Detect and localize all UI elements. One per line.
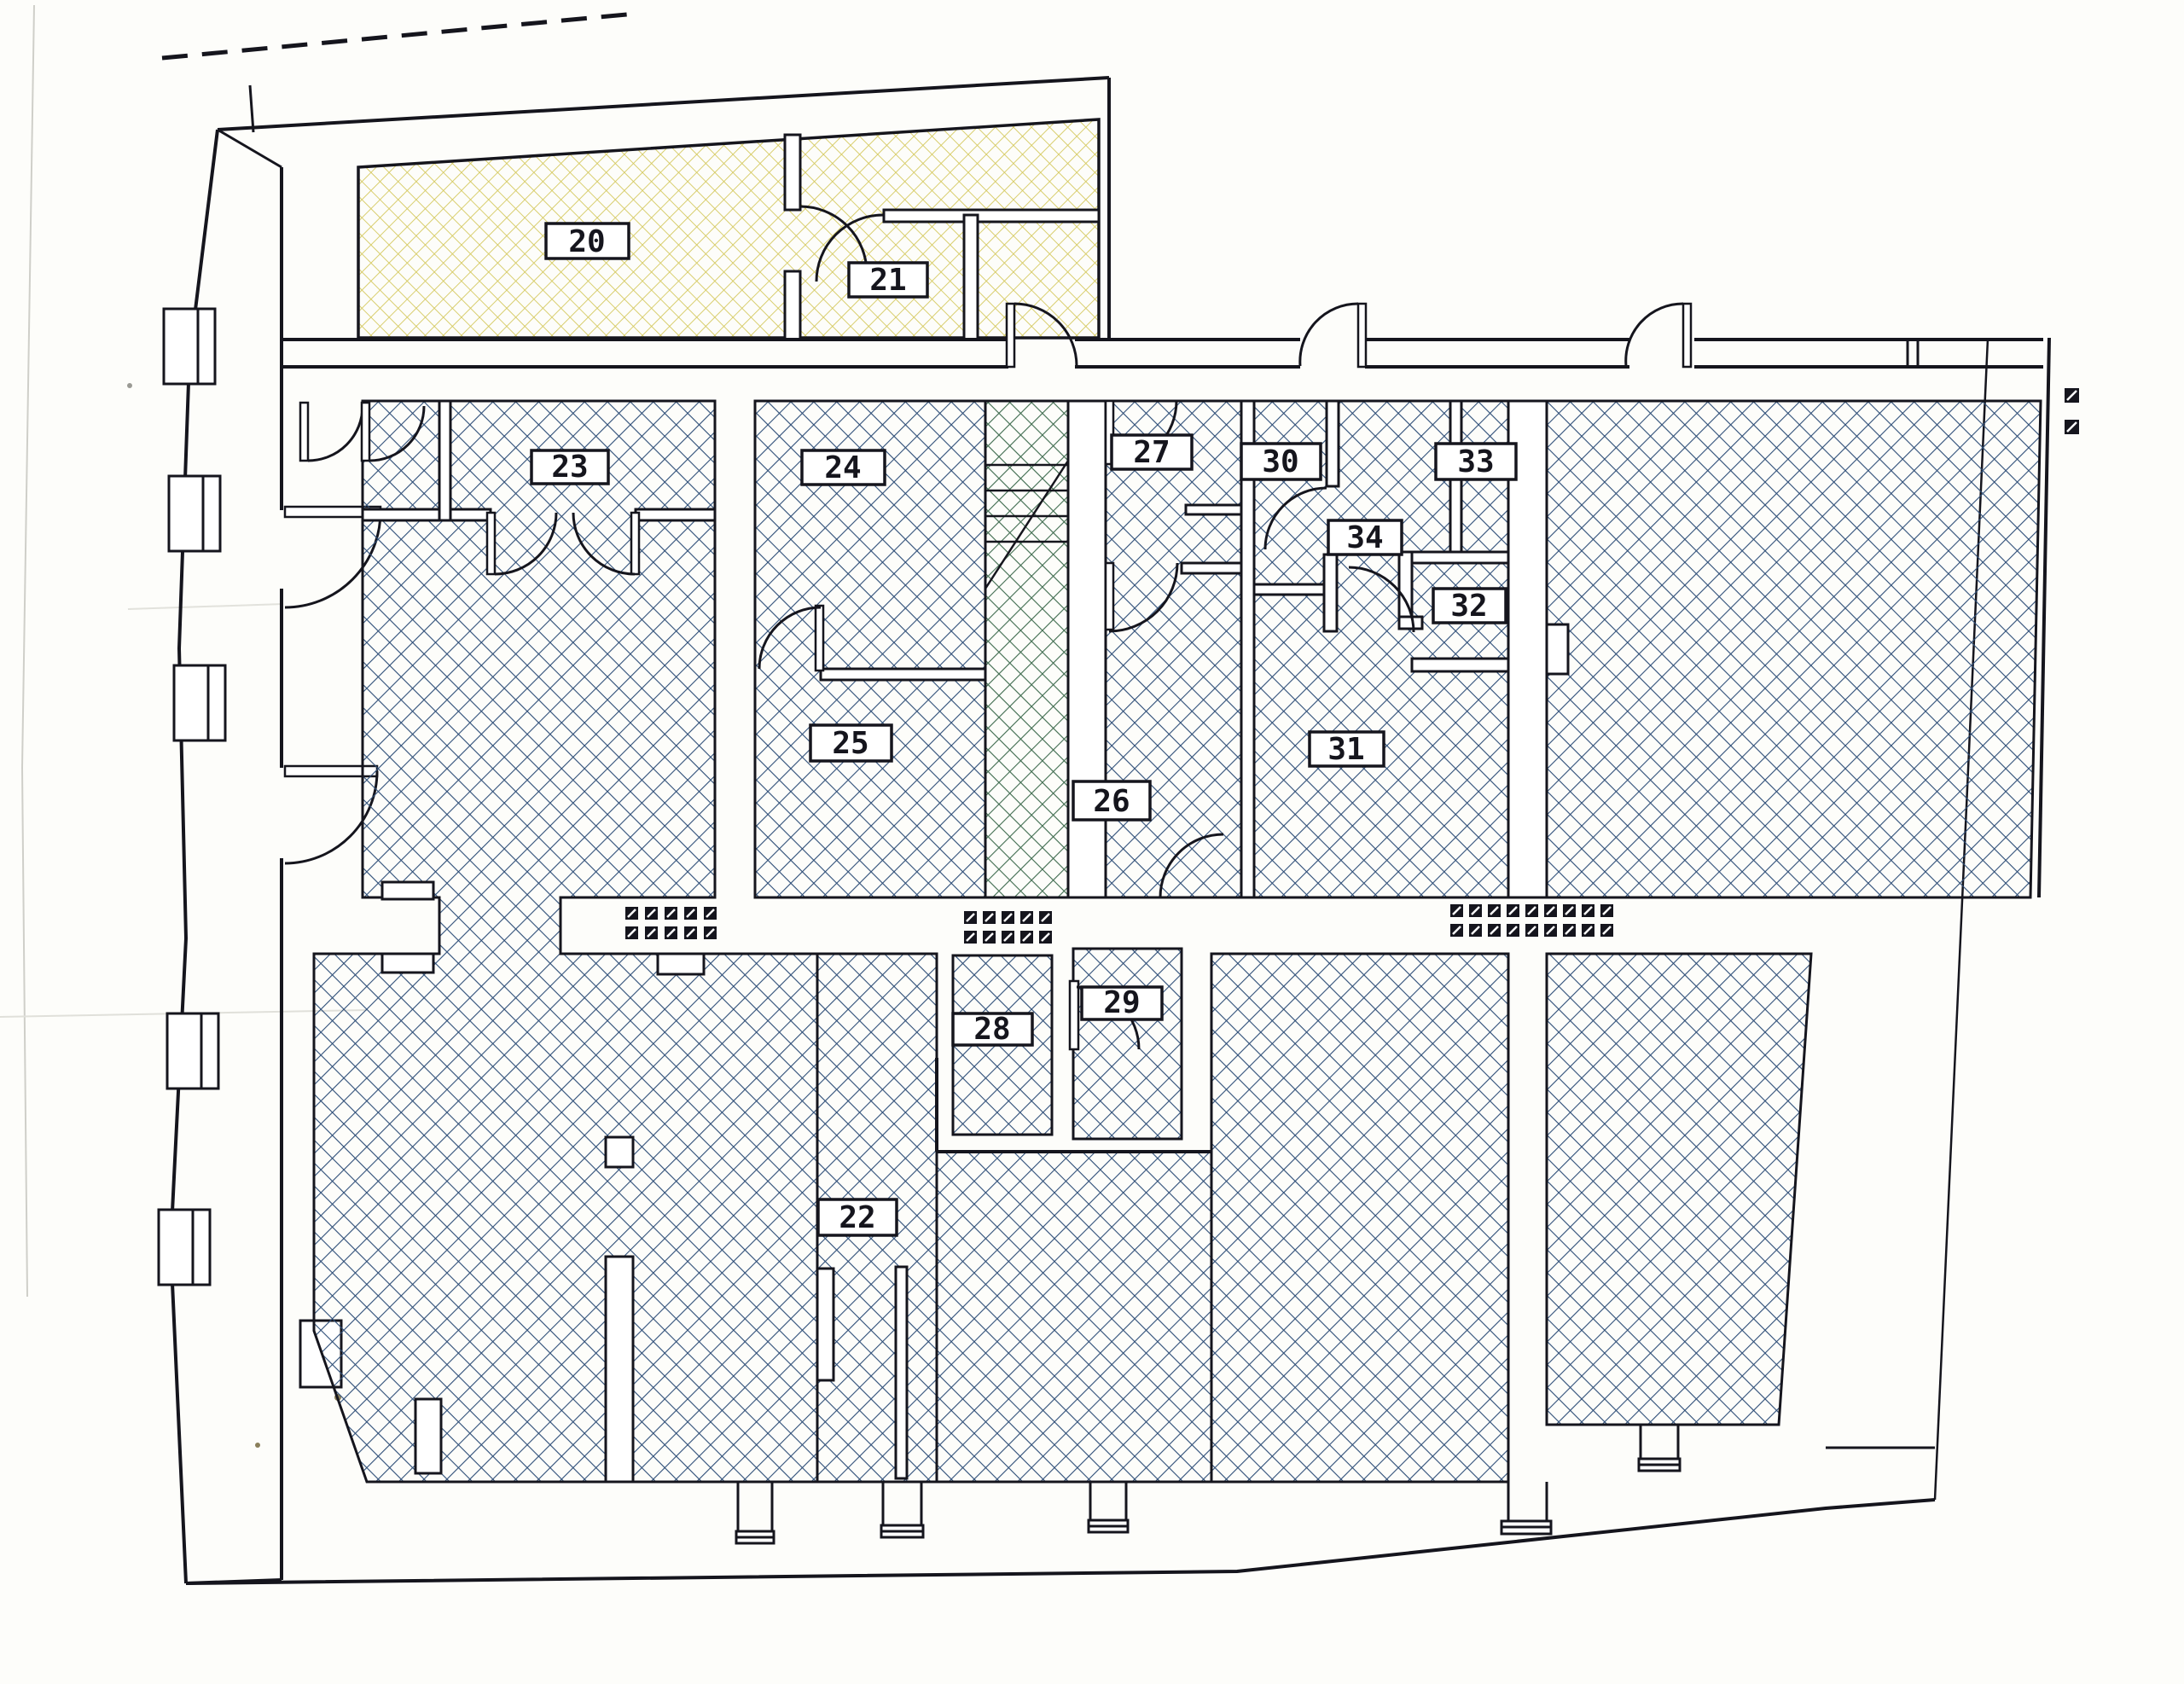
door-leaf <box>1070 981 1078 1049</box>
door-leaf <box>816 606 823 671</box>
room-22-area <box>1211 954 1508 1482</box>
svg-text:32: 32 <box>1450 589 1487 624</box>
svg-text:26: 26 <box>1093 784 1130 819</box>
window <box>167 1013 218 1089</box>
door-leaf <box>1106 563 1113 630</box>
door-arc <box>308 406 363 461</box>
wall-21-jamb-upper <box>785 135 800 210</box>
room-23-label: 23 <box>531 450 608 485</box>
window <box>159 1210 210 1285</box>
corridor-niche <box>382 954 433 973</box>
stair-landing-strip <box>1068 401 1106 897</box>
room-34-label: 34 <box>1328 520 1402 555</box>
window-channel <box>1089 1482 1128 1532</box>
room-21-label: 21 <box>849 263 927 298</box>
room-27-label: 27 <box>1112 435 1192 470</box>
wall-strip <box>896 1267 907 1478</box>
door-notch <box>1547 624 1568 674</box>
room-24-label: 24 <box>802 450 885 485</box>
wall-21-top <box>884 210 1099 222</box>
door-leaf <box>631 513 639 574</box>
svg-text:29: 29 <box>1103 985 1140 1020</box>
wall <box>1327 401 1339 486</box>
door-leaf <box>1007 304 1014 367</box>
wall <box>439 401 450 520</box>
staircase-area <box>985 401 1068 897</box>
wall-stub <box>606 1137 633 1167</box>
room-23-and-22-area <box>314 401 817 1482</box>
wall <box>363 509 491 520</box>
room-33-label: 33 <box>1436 444 1516 479</box>
svg-text:22: 22 <box>839 1200 875 1235</box>
room-32-label: 32 <box>1433 589 1506 624</box>
wall-21-right <box>964 215 978 340</box>
room-28-label: 28 <box>953 1012 1032 1047</box>
svg-text:21: 21 <box>869 263 906 298</box>
window-channel <box>881 1482 923 1537</box>
room-20-area <box>358 119 1099 338</box>
door-leaf <box>1683 304 1691 367</box>
wall <box>1254 584 1324 595</box>
window <box>164 309 215 384</box>
window-channel <box>1639 1425 1680 1471</box>
wall <box>636 509 715 520</box>
rooms-28-29-island <box>937 949 1211 1152</box>
wall <box>1412 552 1508 563</box>
svg-text:27: 27 <box>1133 435 1170 470</box>
room-26-label: 26 <box>1073 781 1150 820</box>
door-leaf <box>1358 304 1366 367</box>
room-22-area <box>1547 954 1811 1425</box>
svg-text:33: 33 <box>1457 444 1494 479</box>
door-leaf <box>362 403 369 461</box>
door-arc <box>1300 304 1358 366</box>
room-30-label: 30 <box>1241 444 1321 479</box>
room-right-area <box>1547 401 2041 897</box>
svg-text:30: 30 <box>1262 444 1298 479</box>
wall <box>821 669 985 680</box>
wall <box>1182 563 1241 573</box>
svg-text:31: 31 <box>1327 732 1364 767</box>
floor-plan-svg: 20 21 22 23 24 25 26 27 28 29 30 31 32 3… <box>0 0 2184 1684</box>
svg-text:24: 24 <box>824 450 861 485</box>
wall <box>1324 555 1337 631</box>
wall <box>1186 505 1241 514</box>
svg-text:34: 34 <box>1346 520 1383 555</box>
room-22-label: 22 <box>818 1199 897 1235</box>
room-29-label: 29 <box>1082 985 1162 1020</box>
room-26-27-area <box>1106 401 1241 897</box>
svg-text:23: 23 <box>551 450 588 485</box>
wall-21-jamb-lower <box>785 271 800 340</box>
room-22-area <box>937 1152 1211 1482</box>
room-20-label: 20 <box>546 224 629 259</box>
room-25-label: 25 <box>810 725 892 761</box>
door-leaf <box>487 513 495 574</box>
room-20-21-block <box>218 78 1109 340</box>
svg-text:20: 20 <box>568 224 605 259</box>
wall <box>1399 617 1422 629</box>
wall-strip <box>606 1257 633 1482</box>
door-leaf <box>300 403 308 461</box>
svg-text:25: 25 <box>832 726 868 761</box>
property-dashed-line <box>162 14 636 132</box>
window-channel <box>736 1482 774 1543</box>
window <box>169 476 220 551</box>
corridor-niche <box>382 882 433 899</box>
room-31-label: 31 <box>1310 732 1384 767</box>
scanned-page: 20 21 22 23 24 25 26 27 28 29 30 31 32 3… <box>0 0 2184 1684</box>
pillar <box>415 1399 441 1473</box>
window <box>174 665 225 740</box>
room-29-area <box>1073 949 1182 1139</box>
wall <box>1412 659 1508 671</box>
window-channel <box>1501 1482 1551 1534</box>
svg-text:28: 28 <box>973 1012 1010 1047</box>
wall-strip <box>817 1269 834 1380</box>
door-arc <box>1626 304 1683 366</box>
corridor-stub <box>658 954 704 974</box>
